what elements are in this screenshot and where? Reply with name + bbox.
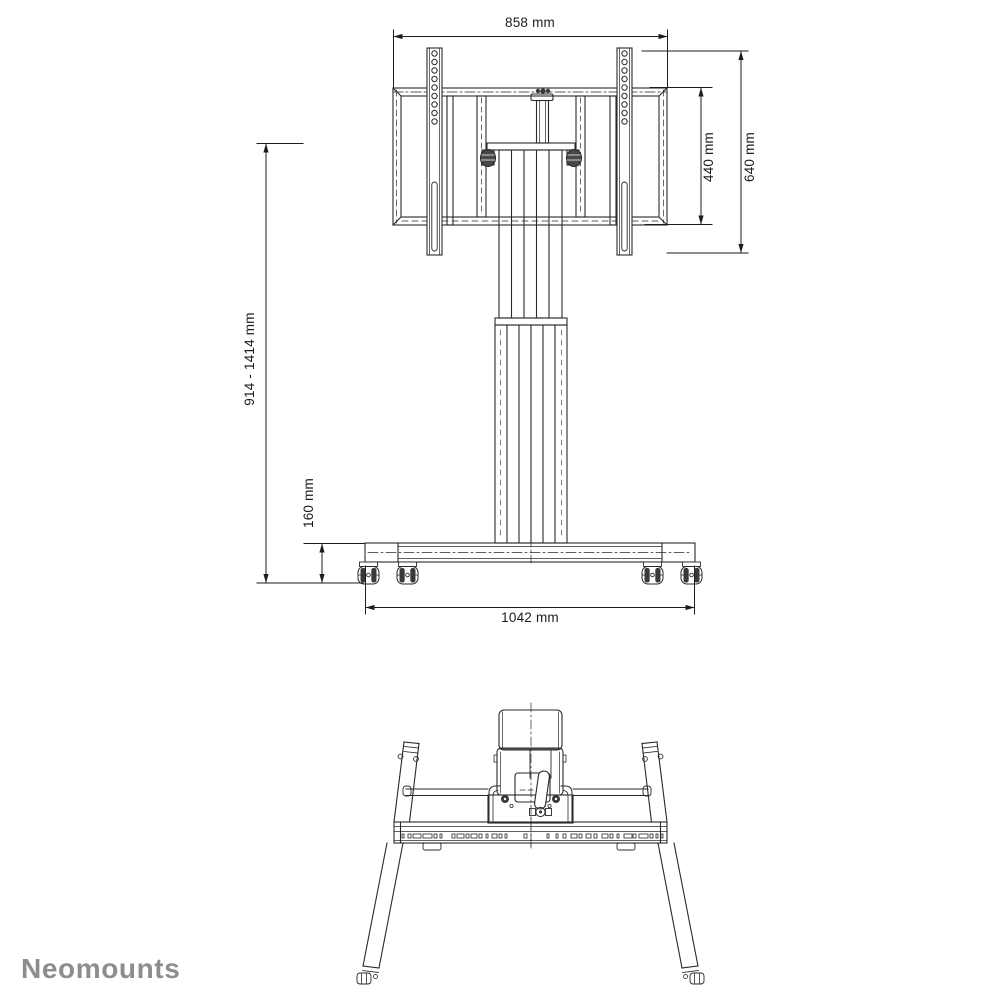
drawing-svg: 858 mm 440 mm 640 mm 914 - 1414 mm 160 m… [0, 0, 1004, 1004]
beam-hole [563, 834, 566, 838]
beam-hole [471, 834, 477, 838]
beam-hole [547, 834, 549, 838]
technical-drawing-page: 858 mm 440 mm 640 mm 914 - 1414 mm 160 m… [0, 0, 1004, 1004]
beam-hole [617, 834, 619, 838]
beam-hole [556, 834, 558, 838]
caster-top-right [684, 973, 705, 984]
beam-hole [624, 834, 632, 838]
base-beam-top [394, 817, 667, 850]
leg-upper-left [394, 742, 419, 822]
dim-label-base-height: 160 mm [301, 478, 316, 528]
caster-front-right-inner [642, 562, 663, 584]
vesa-rail-left [427, 48, 442, 255]
lift-column [481, 88, 582, 543]
front-view: 858 mm 440 mm 640 mm 914 - 1414 mm 160 m… [242, 15, 757, 625]
caster-front-left-outer [358, 562, 379, 584]
beam-hole [440, 834, 442, 838]
dim-label-overall-height: 914 - 1414 mm [242, 312, 257, 405]
beam-hole [402, 834, 404, 838]
vesa-rail-right [617, 48, 632, 255]
dimension-lines [257, 30, 748, 614]
beam-hole [466, 834, 469, 838]
beam-hole [408, 834, 411, 838]
leg-lower-left [357, 843, 403, 984]
top-view [357, 703, 704, 984]
dim-label-bracket-width: 858 mm [505, 15, 555, 30]
beam-hole [423, 834, 432, 838]
beam-hole [650, 834, 653, 838]
beam-hole [571, 834, 577, 838]
beam-hole [639, 834, 648, 838]
beam-hole [499, 834, 502, 838]
beam-hole [586, 834, 591, 838]
beam-hole [594, 834, 597, 838]
tilt-knob-right [567, 150, 582, 167]
tilt-knob-left [481, 150, 496, 167]
caster-top-left [357, 973, 378, 984]
beam-hole [610, 834, 613, 838]
dim-label-bracket-height: 440 mm [701, 132, 716, 182]
beam-hole [661, 834, 663, 838]
dim-label-mount-rail-height: 640 mm [742, 132, 757, 182]
beam-hole [434, 834, 437, 838]
beam-hole-row [402, 834, 663, 838]
beam-hole [656, 834, 658, 838]
leg-upper-right [642, 742, 667, 822]
beam-hole [505, 834, 507, 838]
leg-lower-right [658, 843, 704, 984]
beam-hole [479, 834, 482, 838]
dim-base-height [304, 544, 364, 584]
dim-label-base-width: 1042 mm [501, 610, 559, 625]
beam-hole [602, 834, 608, 838]
caster-front-left-inner [397, 562, 418, 584]
caster-front-right-outer [681, 562, 702, 584]
beam-hole [486, 834, 488, 838]
neomounts-logo: Neomounts [21, 953, 180, 985]
beam-hole [457, 834, 464, 838]
beam-hole [452, 834, 455, 838]
beam-hole [524, 834, 527, 838]
beam-hole [492, 834, 497, 838]
beam-hole [579, 834, 582, 838]
beam-hole [633, 834, 636, 838]
dim-mount-rail-height [642, 51, 748, 253]
beam-hole [413, 834, 421, 838]
lift-column-top [488, 710, 573, 823]
